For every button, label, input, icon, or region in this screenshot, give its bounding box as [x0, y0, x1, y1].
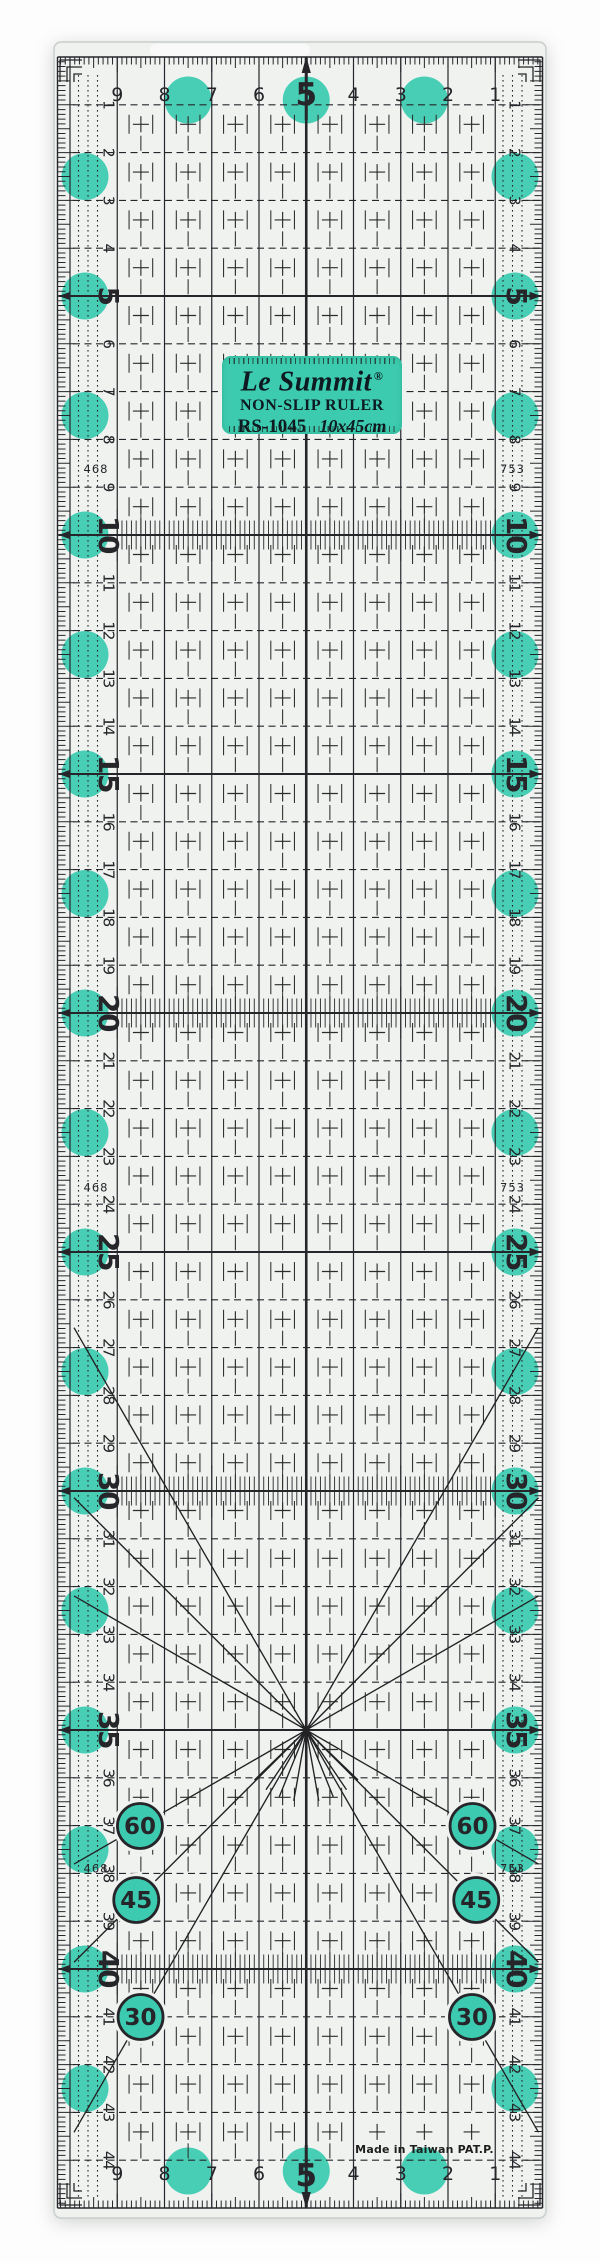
svg-text:36: 36 [506, 1768, 524, 1787]
svg-text:36: 36 [100, 1768, 118, 1787]
registered-mark-icon: ® [374, 369, 383, 383]
svg-text:11: 11 [100, 573, 118, 592]
svg-text:14: 14 [506, 717, 524, 736]
svg-text:18: 18 [506, 908, 524, 927]
svg-text:30: 30 [125, 2005, 157, 2031]
svg-text:24: 24 [506, 1195, 524, 1214]
svg-text:1: 1 [489, 84, 501, 106]
svg-text:37: 37 [100, 1816, 118, 1835]
svg-text:8: 8 [158, 2163, 170, 2185]
svg-text:3: 3 [395, 84, 407, 106]
svg-text:23: 23 [100, 1147, 118, 1166]
svg-text:34: 34 [100, 1673, 118, 1692]
svg-text:39: 39 [100, 1912, 118, 1931]
product-line: NON-SLIP RULER [222, 397, 402, 415]
svg-text:468: 468 [84, 1180, 109, 1194]
label-tick-strip [229, 426, 395, 432]
svg-text:22: 22 [100, 1099, 118, 1118]
svg-text:8: 8 [158, 84, 170, 106]
svg-text:25: 25 [500, 1233, 533, 1271]
svg-text:34: 34 [506, 1673, 524, 1692]
svg-text:8: 8 [506, 435, 524, 444]
svg-text:2: 2 [442, 2163, 454, 2185]
svg-text:42: 42 [506, 2055, 524, 2074]
svg-text:9: 9 [100, 483, 118, 492]
svg-text:15: 15 [500, 755, 533, 793]
svg-text:3: 3 [100, 196, 118, 205]
svg-text:30: 30 [92, 1472, 125, 1510]
svg-text:43: 43 [506, 2103, 524, 2122]
svg-text:39: 39 [506, 1912, 524, 1931]
svg-text:28: 28 [100, 1386, 118, 1405]
svg-text:7: 7 [206, 2163, 218, 2185]
svg-text:14: 14 [100, 717, 118, 736]
svg-text:10: 10 [500, 516, 533, 554]
svg-text:3: 3 [506, 196, 524, 205]
svg-text:40: 40 [500, 1950, 533, 1988]
svg-text:9: 9 [506, 483, 524, 492]
svg-text:7: 7 [506, 387, 524, 396]
svg-text:20: 20 [92, 994, 125, 1032]
svg-text:41: 41 [100, 2007, 118, 2026]
svg-text:3: 3 [395, 2163, 407, 2185]
svg-text:753: 753 [500, 1180, 525, 1194]
svg-text:40: 40 [92, 1950, 125, 1988]
svg-text:2: 2 [442, 84, 454, 106]
svg-text:25: 25 [92, 1233, 125, 1271]
svg-text:37: 37 [506, 1816, 524, 1835]
svg-text:21: 21 [100, 1051, 118, 1070]
svg-text:31: 31 [100, 1529, 118, 1548]
svg-text:5: 5 [500, 287, 533, 306]
svg-text:27: 27 [506, 1338, 524, 1357]
svg-text:41: 41 [506, 2007, 524, 2026]
svg-text:13: 13 [100, 669, 118, 688]
svg-text:28: 28 [506, 1386, 524, 1405]
brand-label: Le Summit® NON-SLIP RULER RS-104510x45cm [222, 356, 402, 434]
svg-text:468: 468 [84, 462, 109, 476]
svg-text:4: 4 [100, 244, 118, 253]
made-in-text: Made in Taiwan PAT.P. [352, 2143, 497, 2156]
svg-text:13: 13 [506, 669, 524, 688]
svg-text:44: 44 [100, 2151, 118, 2170]
ruler-graphic: 6060454530309876543219876543211122334455… [0, 0, 600, 2263]
svg-text:23: 23 [506, 1147, 524, 1166]
svg-text:5: 5 [92, 287, 125, 306]
svg-text:6: 6 [506, 339, 524, 348]
svg-text:31: 31 [506, 1529, 524, 1548]
svg-text:4: 4 [347, 84, 359, 106]
svg-text:32: 32 [506, 1577, 524, 1596]
svg-text:33: 33 [100, 1625, 118, 1644]
svg-text:33: 33 [506, 1625, 524, 1644]
svg-text:2: 2 [506, 148, 524, 157]
svg-text:1: 1 [506, 100, 524, 109]
svg-text:30: 30 [456, 2005, 488, 2031]
svg-text:2: 2 [100, 148, 118, 157]
svg-text:468: 468 [84, 1862, 109, 1876]
svg-text:19: 19 [100, 956, 118, 975]
brand-name: Le Summit® [222, 361, 402, 397]
svg-text:45: 45 [120, 1888, 152, 1914]
svg-text:27: 27 [100, 1338, 118, 1357]
svg-text:17: 17 [506, 860, 524, 879]
label-tick-strip [229, 358, 395, 364]
svg-text:17: 17 [100, 860, 118, 879]
svg-text:43: 43 [100, 2103, 118, 2122]
svg-text:45: 45 [460, 1888, 492, 1914]
svg-text:18: 18 [100, 908, 118, 927]
svg-text:10: 10 [92, 516, 125, 554]
svg-text:5: 5 [295, 77, 317, 113]
svg-text:35: 35 [92, 1711, 125, 1749]
svg-text:42: 42 [100, 2055, 118, 2074]
svg-text:60: 60 [457, 1814, 489, 1840]
svg-text:60: 60 [124, 1814, 156, 1840]
svg-text:21: 21 [506, 1051, 524, 1070]
svg-text:35: 35 [500, 1711, 533, 1749]
svg-text:1: 1 [489, 2163, 501, 2185]
svg-text:6: 6 [253, 84, 265, 106]
svg-text:6: 6 [253, 2163, 265, 2185]
svg-text:7: 7 [100, 387, 118, 396]
svg-text:19: 19 [506, 956, 524, 975]
svg-text:16: 16 [100, 812, 118, 831]
svg-text:4: 4 [347, 2163, 359, 2185]
svg-text:16: 16 [506, 812, 524, 831]
svg-text:29: 29 [100, 1434, 118, 1453]
svg-text:11: 11 [506, 573, 524, 592]
svg-text:20: 20 [500, 994, 533, 1032]
svg-text:4: 4 [506, 244, 524, 253]
ruler-photo: 6060454530309876543219876543211122334455… [0, 0, 600, 2263]
svg-text:753: 753 [500, 1862, 525, 1876]
svg-text:29: 29 [506, 1434, 524, 1453]
svg-text:753: 753 [500, 462, 525, 476]
svg-text:30: 30 [500, 1472, 533, 1510]
svg-text:24: 24 [100, 1195, 118, 1214]
svg-text:44: 44 [506, 2151, 524, 2170]
svg-text:8: 8 [100, 435, 118, 444]
svg-text:15: 15 [92, 755, 125, 793]
svg-text:22: 22 [506, 1099, 524, 1118]
svg-text:1: 1 [100, 100, 118, 109]
svg-text:6: 6 [100, 339, 118, 348]
svg-text:7: 7 [206, 84, 218, 106]
svg-text:12: 12 [506, 621, 524, 640]
svg-text:26: 26 [506, 1290, 524, 1309]
svg-text:12: 12 [100, 621, 118, 640]
svg-text:32: 32 [100, 1577, 118, 1596]
svg-text:5: 5 [295, 2158, 317, 2194]
svg-text:26: 26 [100, 1290, 118, 1309]
